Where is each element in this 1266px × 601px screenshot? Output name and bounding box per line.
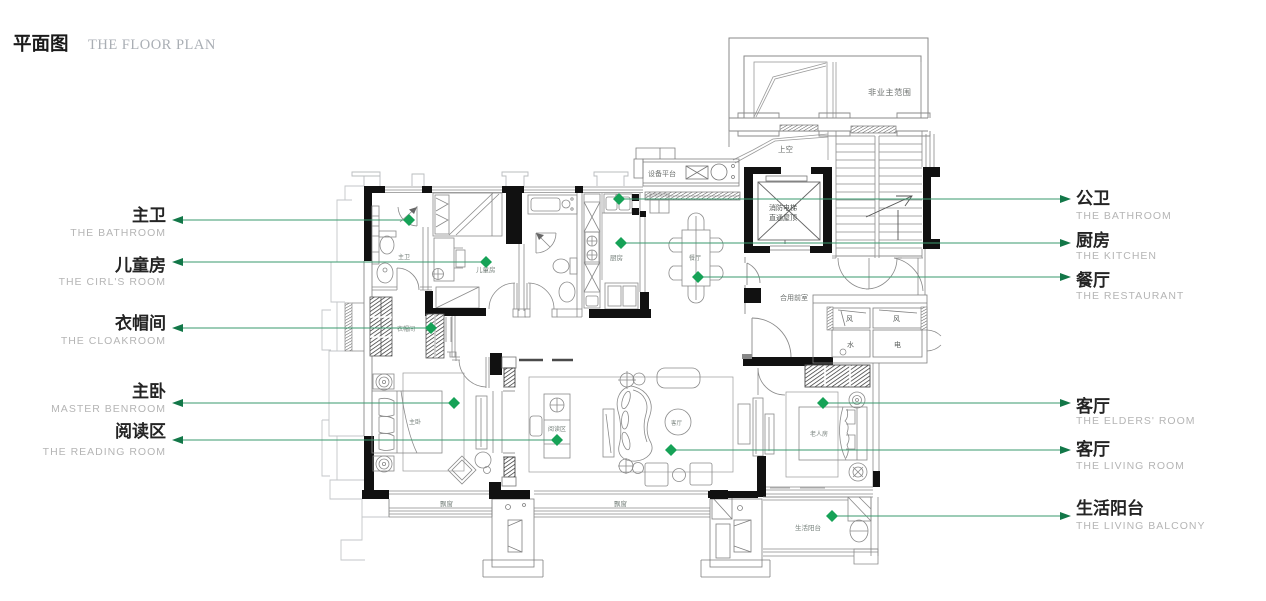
svg-text:THE BATHROOM: THE BATHROOM (70, 227, 166, 239)
svg-text:水: 水 (847, 340, 854, 349)
svg-text:THE LIVING BALCONY: THE LIVING BALCONY (1076, 520, 1205, 532)
svg-text:设备平台: 设备平台 (648, 169, 676, 178)
svg-text:老人房: 老人房 (810, 430, 828, 438)
svg-text:公卫: 公卫 (1076, 189, 1110, 208)
svg-text:阅读区: 阅读区 (548, 425, 566, 433)
svg-text:风: 风 (893, 315, 900, 323)
svg-text:衣帽间: 衣帽间 (397, 325, 415, 333)
svg-text:阅读区: 阅读区 (115, 421, 166, 441)
svg-text:THE CIRL'S ROOM: THE CIRL'S ROOM (59, 276, 166, 288)
svg-text:厨房: 厨房 (610, 253, 623, 262)
svg-text:直通屋顶: 直通屋顶 (769, 213, 797, 222)
svg-text:THE KITCHEN: THE KITCHEN (1076, 250, 1157, 262)
svg-text:THE FLOOR PLAN: THE FLOOR PLAN (88, 37, 216, 53)
svg-text:飘窗: 飘窗 (614, 499, 627, 508)
svg-text:生活阳台: 生活阳台 (1076, 498, 1144, 518)
svg-text:平面图: 平面图 (13, 33, 69, 54)
svg-text:餐厅: 餐厅 (689, 254, 701, 262)
svg-text:餐厅: 餐厅 (1076, 270, 1110, 290)
svg-text:客厅: 客厅 (671, 419, 683, 427)
svg-text:THE BATHROOM: THE BATHROOM (1076, 210, 1172, 222)
svg-text:消防电梯: 消防电梯 (769, 203, 797, 212)
svg-text:THE READING ROOM: THE READING ROOM (43, 446, 166, 458)
svg-text:主卫: 主卫 (132, 205, 166, 225)
svg-text:飘窗: 飘窗 (440, 499, 453, 508)
svg-text:电: 电 (894, 340, 901, 349)
svg-text:生活阳台: 生活阳台 (795, 523, 821, 532)
svg-text:上空: 上空 (778, 144, 793, 154)
svg-text:客厅: 客厅 (1075, 439, 1110, 459)
svg-text:厨房: 厨房 (1076, 230, 1110, 250)
svg-text:非业主范围: 非业主范围 (868, 87, 911, 97)
svg-text:合用前室: 合用前室 (780, 293, 808, 302)
svg-text:主卧: 主卧 (132, 381, 166, 401)
svg-text:THE LIVING ROOM: THE LIVING ROOM (1076, 460, 1185, 472)
svg-text:MASTER BENROOM: MASTER BENROOM (51, 403, 166, 415)
svg-text:儿童房: 儿童房 (114, 255, 166, 275)
svg-text:THE RESTAURANT: THE RESTAURANT (1076, 290, 1184, 302)
svg-text:THE CLOAKROOM: THE CLOAKROOM (61, 335, 166, 347)
svg-text:客厅: 客厅 (1075, 396, 1110, 416)
svg-text:主卧: 主卧 (409, 418, 421, 426)
svg-text:风: 风 (846, 315, 853, 323)
svg-text:衣帽间: 衣帽间 (115, 313, 166, 333)
svg-text:THE ELDERS' ROOM: THE ELDERS' ROOM (1076, 415, 1196, 427)
svg-text:主卫: 主卫 (398, 253, 410, 261)
